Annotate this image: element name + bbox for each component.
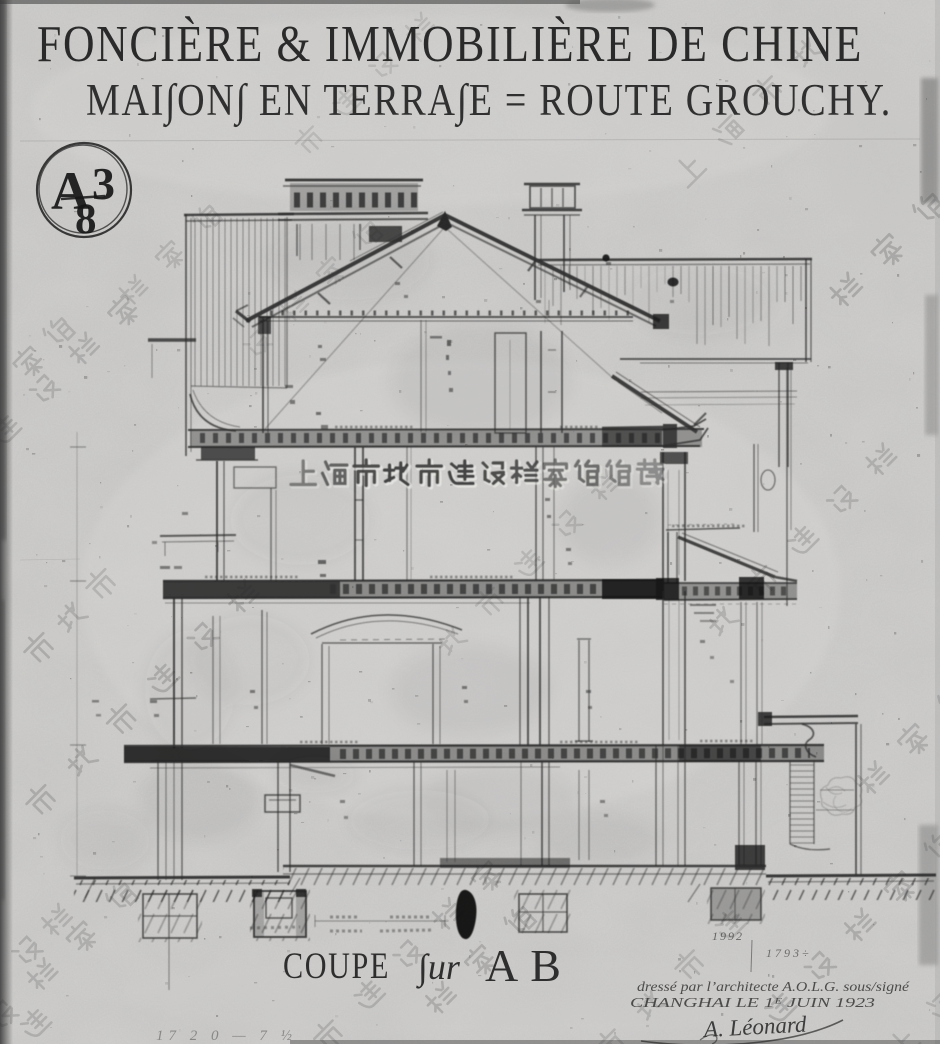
svg-text:1992: 1992 bbox=[712, 929, 744, 943]
svg-text:AB: AB bbox=[485, 940, 573, 991]
svg-text:17 2 0 — 7 ½: 17 2 0 — 7 ½ bbox=[156, 1028, 297, 1044]
svg-text:∫ur: ∫ur bbox=[416, 947, 461, 989]
svg-text:FONCIÈRE & IMMOBILIÈRE DE CHIN: FONCIÈRE & IMMOBILIÈRE DE CHINE bbox=[37, 15, 863, 73]
svg-text:dressé par l’architecte A.O.L.: dressé par l’architecte A.O.L.G. sous/si… bbox=[637, 979, 910, 994]
svg-text:1793÷: 1793÷ bbox=[766, 946, 812, 960]
svg-text:CHANGHAI LE 1ᴱ JUIN 1923: CHANGHAI LE 1ᴱ JUIN 1923 bbox=[630, 995, 875, 1010]
svg-text:MAI∫ON∫ EN TERRA∫E = ROUTE GRO: MAI∫ON∫ EN TERRA∫E = ROUTE GROUCHY. bbox=[86, 75, 892, 128]
svg-text:COUPE: COUPE bbox=[283, 946, 390, 987]
svg-text:8: 8 bbox=[75, 196, 97, 243]
